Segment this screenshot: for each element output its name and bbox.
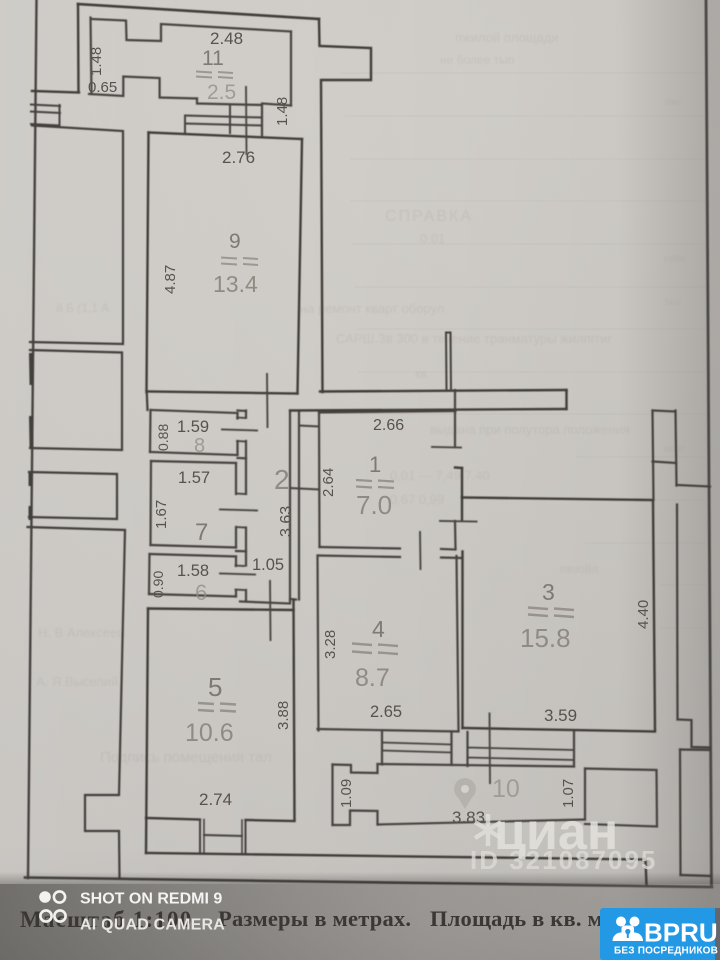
svg-text:6: 6 [195,580,207,605]
svg-text:2: 2 [274,464,290,495]
svg-text:1: 1 [369,452,381,477]
svg-text:2.76: 2.76 [222,148,255,167]
svg-text:Площадь в кв. м: Площадь в кв. м [430,906,603,931]
svg-text:кв.: кв. [415,367,430,381]
svg-text:1.05: 1.05 [252,556,284,574]
svg-text:2.65: 2.65 [370,703,402,721]
svg-text:4: 4 [372,616,385,642]
svg-text:1.48: 1.48 [274,97,291,126]
svg-text:0.88: 0.88 [155,424,171,451]
svg-text:11: 11 [202,47,224,70]
svg-text:пвзойл: пвзойл [560,562,598,576]
svg-text:4.40: 4.40 [635,600,652,629]
svg-text:7: 7 [195,519,208,546]
svg-text:й Б (1,1 А: й Б (1,1 А [56,301,109,315]
svg-text:5: 5 [208,672,222,702]
svg-text:1.57: 1.57 [178,469,210,487]
svg-text:1.59: 1.59 [177,418,209,436]
svg-text:волс: волс [664,444,685,455]
svg-text:3.28: 3.28 [322,630,339,659]
svg-text:2.66: 2.66 [373,417,404,434]
svg-text:7.0: 7.0 [356,490,392,520]
svg-text:8.7: 8.7 [355,664,390,692]
svg-text:А. Я Выселий: А. Я Выселий [36,674,118,689]
svg-text:4.87: 4.87 [162,265,179,294]
svg-text:3.59: 3.59 [544,706,577,725]
svg-text:1.58: 1.58 [177,562,209,580]
svg-text:13.4: 13.4 [213,271,258,297]
svg-text:ID 321087095: ID 321087095 [470,845,657,875]
svg-text:0.01: 0.01 [420,231,445,246]
svg-text:SHOT ON REDMI 9: SHOT ON REDMI 9 [80,891,222,908]
svg-text:10: 10 [492,775,520,803]
svg-text:себя: себя [664,253,685,265]
svg-text:15.8: 15.8 [520,623,571,653]
svg-text:1.48: 1.48 [88,47,105,76]
svg-text:2.64: 2.64 [320,468,337,497]
svg-text:не более тып: не более тып [440,53,514,67]
svg-text:3.88: 3.88 [275,701,292,730]
svg-text:пжилой площади: пжилой площади [455,30,559,45]
svg-text:ткш: ткш [664,297,681,308]
svg-text:БЕЗ ПОСРЕДНИКОВ: БЕЗ ПОСРЕДНИКОВ [614,946,718,957]
svg-text:3: 3 [542,579,555,605]
svg-text:3.63: 3.63 [278,506,295,537]
svg-text:Размеры в метрах.: Размеры в метрах. [218,906,411,931]
svg-text:СПРАВКА: СПРАВКА [385,208,473,225]
svg-text:0,01 — 7,49 7.40: 0,01 — 7,49 7.40 [390,468,490,483]
svg-text:Н. В Алексеев: Н. В Алексеев [38,625,124,640]
svg-text:8: 8 [194,435,205,457]
svg-text:2.74: 2.74 [199,790,232,809]
svg-text:10.6: 10.6 [185,719,234,747]
svg-text:BPRU: BPRU [644,918,718,948]
svg-text:1.67: 1.67 [153,500,170,529]
svg-text:0.65: 0.65 [88,79,117,96]
svg-text:0.90: 0.90 [150,571,166,598]
svg-text:9: 9 [229,230,241,253]
svg-text:Подпись помещения тал: Подпись помещения тал [100,749,272,766]
svg-text:AI QUAD CAMERA: AI QUAD CAMERA [80,917,225,934]
svg-text:САРШ.Зв 300 в течение транмату: САРШ.Зв 300 в течение транматуры жилпгги… [336,331,612,346]
svg-text:2.5: 2.5 [207,81,236,104]
svg-text:лжс: лжс [664,97,682,108]
svg-text:0,67 0,99: 0,67 0,99 [390,492,444,507]
svg-text:выдана при полутора положения: выдана при полутора положения [430,422,630,437]
svg-text:1.09: 1.09 [338,779,355,808]
svg-text:2.48: 2.48 [210,29,243,48]
